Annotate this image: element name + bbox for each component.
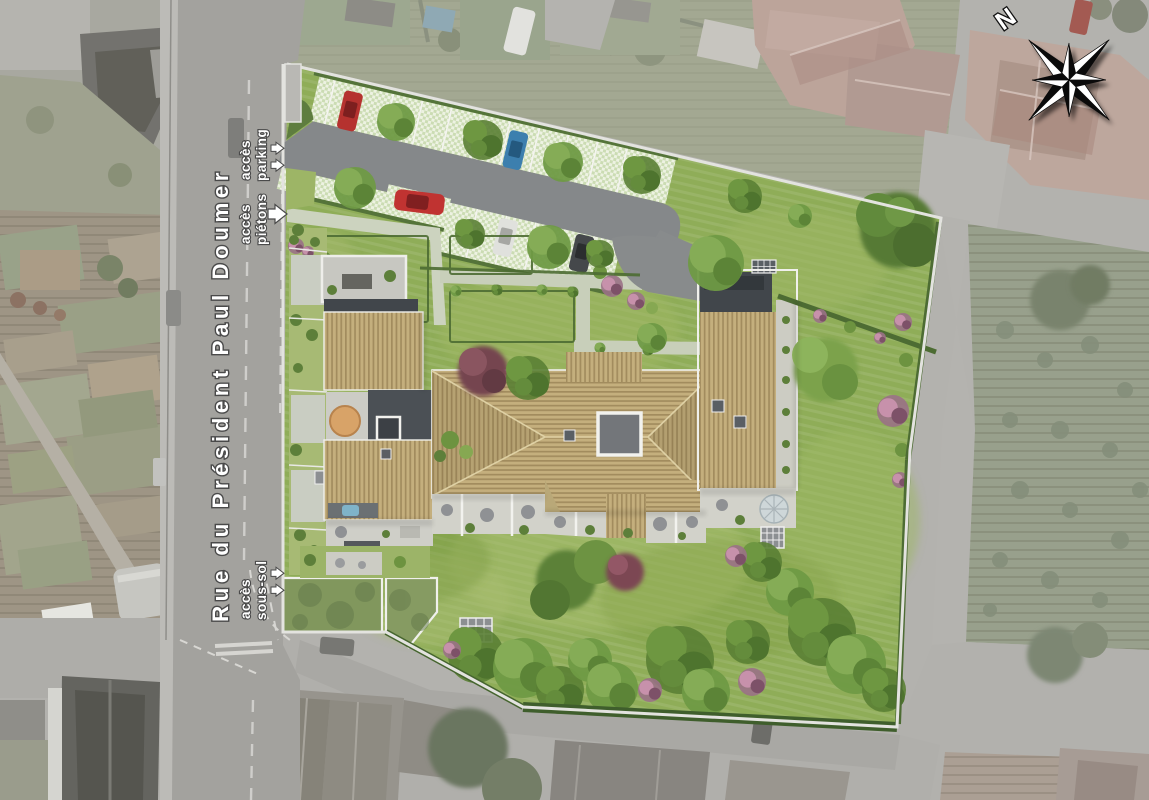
svg-text:accès: accès [238, 140, 253, 180]
svg-text:sous-sol: sous-sol [254, 560, 269, 620]
svg-text:parking: parking [254, 129, 269, 181]
svg-text:Rue du Président Paul Doumer: Rue du Président Paul Doumer [208, 170, 233, 622]
svg-text:accès: accès [238, 204, 253, 244]
svg-text:piétons: piétons [254, 193, 269, 245]
svg-text:accès: accès [238, 579, 253, 619]
